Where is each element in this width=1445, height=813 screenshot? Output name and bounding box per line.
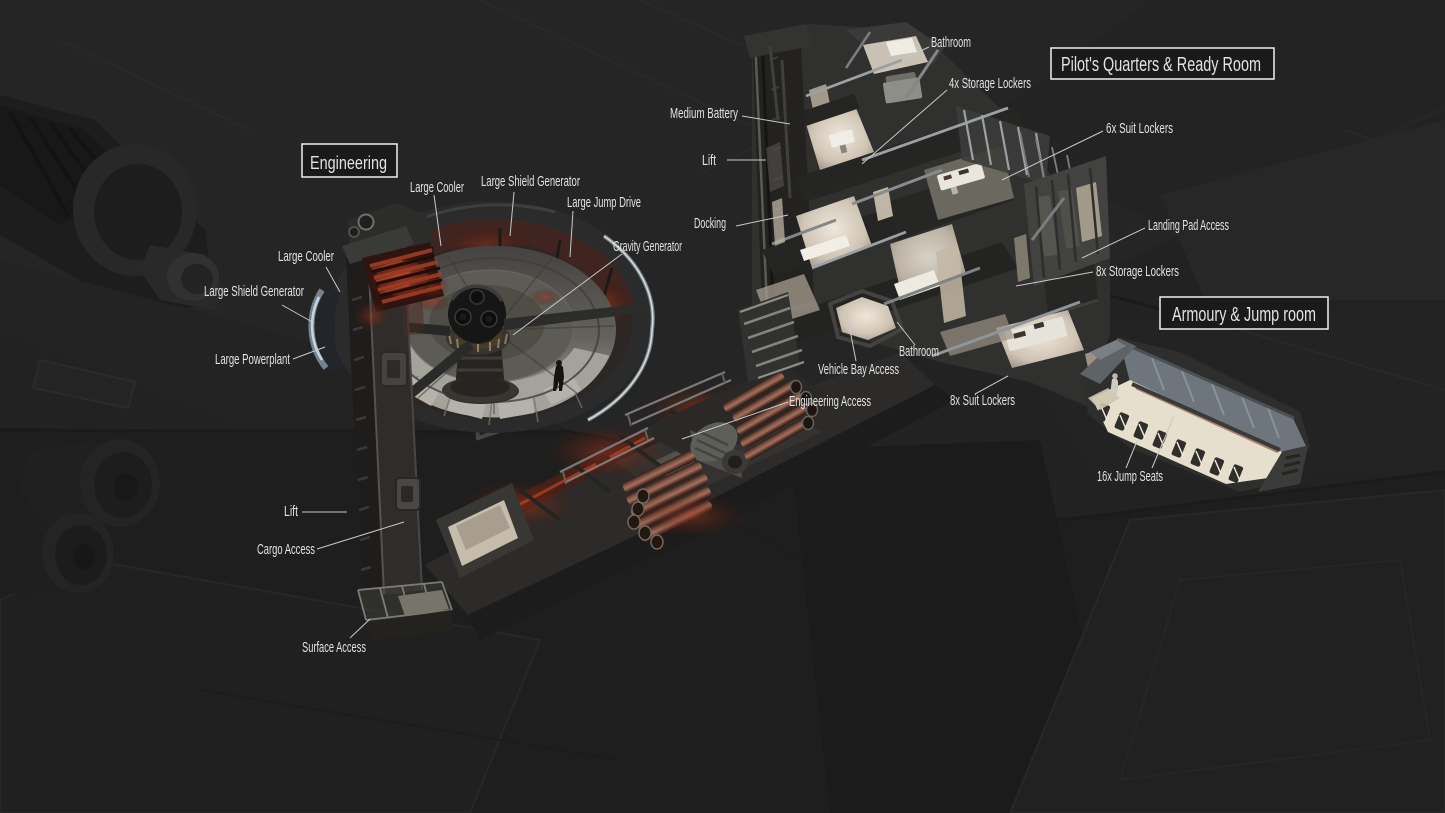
svg-text:Lift: Lift xyxy=(284,504,298,520)
svg-text:Large Powerplant: Large Powerplant xyxy=(215,352,290,368)
svg-text:8x Suit Lockers: 8x Suit Lockers xyxy=(950,393,1015,409)
svg-text:4x Storage Lockers: 4x Storage Lockers xyxy=(949,76,1031,92)
svg-text:16x Jump Seats: 16x Jump Seats xyxy=(1097,469,1163,485)
svg-text:Armoury & Jump room: Armoury & Jump room xyxy=(1172,304,1316,326)
svg-text:6x Suit Lockers: 6x Suit Lockers xyxy=(1106,121,1173,137)
svg-text:Lift: Lift xyxy=(702,153,716,169)
svg-text:Pilot's Quarters & Ready Room: Pilot's Quarters & Ready Room xyxy=(1061,54,1261,76)
svg-text:Engineering: Engineering xyxy=(310,153,387,173)
svg-text:Medium Battery: Medium Battery xyxy=(670,106,738,122)
svg-text:Large Cooler: Large Cooler xyxy=(278,249,334,265)
svg-text:Surface Access: Surface Access xyxy=(302,640,366,656)
svg-text:Large Shield Generator: Large Shield Generator xyxy=(481,174,580,190)
svg-text:Bathroom: Bathroom xyxy=(931,35,971,51)
svg-text:Large Cooler: Large Cooler xyxy=(410,180,464,196)
svg-text:Landing Pad Access: Landing Pad Access xyxy=(1148,218,1229,234)
svg-text:Docking: Docking xyxy=(694,216,726,232)
svg-text:Engineering Access: Engineering Access xyxy=(789,394,871,410)
svg-text:Large Jump Drive: Large Jump Drive xyxy=(567,195,641,211)
svg-text:8x Storage Lockers: 8x Storage Lockers xyxy=(1096,264,1179,280)
svg-text:Cargo Access: Cargo Access xyxy=(257,542,315,558)
svg-text:Vehicle Bay Access: Vehicle Bay Access xyxy=(818,362,899,378)
svg-text:Gravity Generator: Gravity Generator xyxy=(613,239,682,255)
svg-text:Bathroom: Bathroom xyxy=(899,344,939,360)
svg-text:Large Shield Generator: Large Shield Generator xyxy=(204,284,304,300)
